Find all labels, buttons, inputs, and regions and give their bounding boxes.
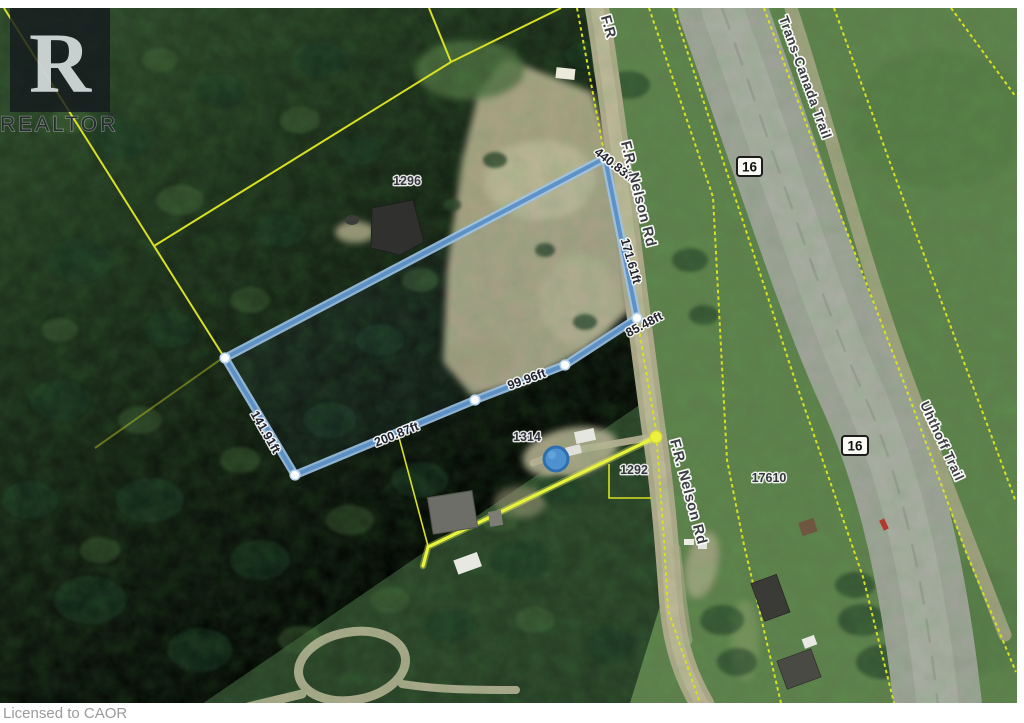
- registered-trademark-symbol: ®: [108, 110, 116, 122]
- parcel-number-1314: 1314: [513, 430, 541, 444]
- svg-text:16: 16: [847, 439, 863, 454]
- highway-16-shield-lower: 16: [842, 436, 868, 455]
- realtor-logo-letter: R: [29, 15, 92, 111]
- license-text: Licensed to CAOR: [3, 705, 127, 722]
- lot-line-junction-node: [650, 431, 662, 443]
- realtor-logo-word: REALTOR: [0, 113, 118, 136]
- parcel-number-1296: 1296: [393, 174, 421, 188]
- svg-text:16: 16: [742, 160, 758, 175]
- realtor-logo: R REALTOR ®: [0, 8, 118, 136]
- vehicle-1296: [345, 215, 359, 225]
- camper-clearing: [555, 67, 575, 80]
- highway-16-shield-upper: 16: [737, 157, 762, 176]
- house-1314: [427, 491, 477, 535]
- parcel-number-1292: 1292: [620, 463, 648, 477]
- aerial-map: 440.83ft 171.61ft 85.48ft 99.96ft 200.87…: [0, 0, 1024, 723]
- listing-map-screenshot: 440.83ft 171.61ft 85.48ft 99.96ft 200.87…: [0, 0, 1024, 723]
- shed-1314: [488, 510, 503, 527]
- parcel-number-17610: 17610: [752, 471, 787, 485]
